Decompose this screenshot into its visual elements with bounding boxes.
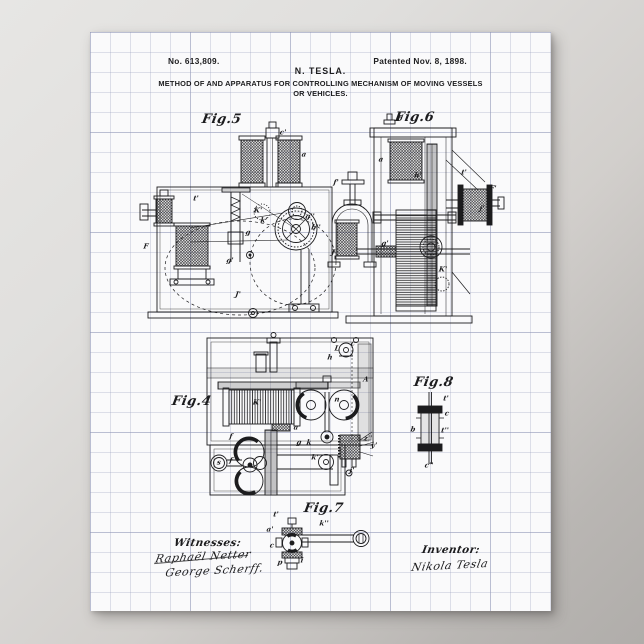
ref-letter-fig4: h	[327, 354, 333, 361]
patent-poster-paper: No. 613,809. Patented Nov. 8, 1898. N. T…	[90, 32, 551, 611]
ref-letter-fig5: k'	[260, 217, 268, 224]
ref-letter-fig5: b''	[311, 224, 321, 231]
ref-letter-fig4: k	[306, 439, 312, 446]
ref-letter-fig4: f	[229, 457, 233, 464]
ref-letter-fig8: t'	[443, 395, 449, 402]
ref-letter-fig5: g	[245, 229, 251, 236]
ref-letter-fig4: c	[350, 340, 355, 347]
ref-letter-fig4: n	[334, 396, 340, 403]
ref-letter-fig5: K'	[253, 207, 262, 214]
ref-letter-fig6: j'	[479, 205, 485, 212]
ref-letter-fig6: J	[331, 249, 335, 256]
ref-letter-fig7: a'	[266, 526, 274, 533]
ref-letter-fig5: t'	[193, 195, 199, 202]
ref-letter-fig8: c	[444, 410, 449, 417]
ref-letter-fig7: t'	[273, 511, 279, 518]
poster-backdrop: { "poster": { "background_top": "#e7e6e4…	[0, 0, 644, 644]
ref-letter-fig7: k''	[319, 520, 329, 527]
ref-letter-fig8: t''	[441, 427, 450, 434]
ref-letter-fig4: k'	[311, 454, 319, 461]
ref-letter-fig6: g'	[381, 240, 389, 247]
reference-letters-layer: c'aK'k'gg''b''Fg'J't'baf'h't'F'j'K'Jg'cL…	[90, 32, 551, 611]
ref-letter-fig4: f	[229, 433, 233, 440]
ref-letter-fig6: K'	[438, 266, 447, 273]
ref-letter-fig8: b	[410, 426, 416, 433]
inventor-label: Inventor:	[421, 544, 481, 556]
ref-letter-fig8: c''	[424, 462, 434, 469]
ref-letter-fig5: g''	[305, 213, 315, 220]
ref-letter-fig5: c'	[279, 129, 286, 136]
witnesses-label: Witnesses:	[173, 537, 242, 549]
ref-letter-fig5: g'	[226, 257, 234, 264]
ref-letter-fig5: F	[143, 243, 149, 250]
ref-letter-fig6: f'	[333, 179, 339, 186]
ref-letter-fig4: L	[334, 345, 340, 352]
ref-letter-fig7: c	[269, 542, 274, 549]
ref-letter-fig6: F'	[489, 185, 497, 192]
ref-letter-fig4: j'	[349, 467, 355, 474]
ref-letter-fig4: g	[296, 439, 302, 446]
ref-letter-fig4: a	[293, 424, 299, 431]
ref-letter-fig6: a	[378, 156, 384, 163]
ref-letter-fig6: t'	[461, 169, 467, 176]
ref-letter-fig4: y'	[370, 442, 377, 449]
ref-letter-fig6: h'	[414, 172, 422, 179]
ref-letter-fig4: K'	[252, 399, 261, 406]
ref-letter-fig4: s	[217, 459, 222, 466]
ref-letter-fig5: a	[301, 151, 307, 158]
ref-letter-fig5: J'	[235, 291, 241, 298]
ref-letter-fig4: A	[363, 376, 369, 383]
ref-letter-fig7: i	[300, 557, 304, 564]
ref-letter-fig7: p	[277, 559, 283, 566]
ref-letter-fig6: b	[397, 115, 403, 122]
